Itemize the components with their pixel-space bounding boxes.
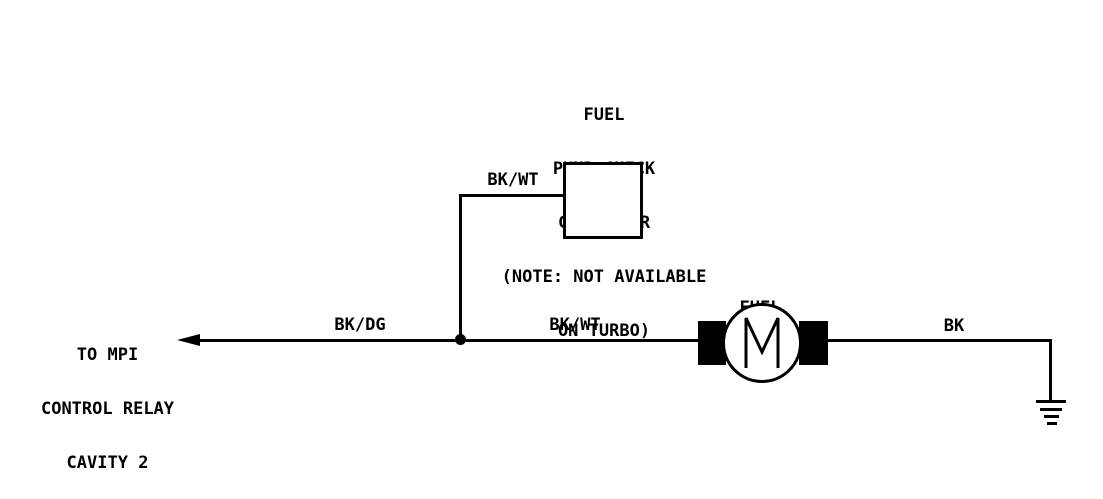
check-connector-label-line: FUEL bbox=[454, 106, 754, 124]
ground-bar bbox=[1040, 408, 1062, 411]
wire-label-bkdg: BK/DG bbox=[310, 316, 410, 334]
mpi-relay-label-line: TO MPI bbox=[10, 346, 205, 364]
wire-label-bkwt-main: BK/WT bbox=[525, 316, 625, 334]
wire-main-left bbox=[197, 339, 701, 342]
wire-ground-vertical bbox=[1049, 339, 1052, 402]
junction-dot bbox=[455, 334, 466, 345]
wiring-diagram: FUEL PUMP CHECK CONNECTOR (NOTE: NOT AVA… bbox=[0, 0, 1103, 499]
wire-label-bkwt-top: BK/WT bbox=[460, 171, 566, 189]
motor-terminal-right bbox=[799, 321, 828, 365]
wire-main-right bbox=[826, 339, 1052, 342]
mpi-relay-label-line: CONTROL RELAY bbox=[10, 400, 205, 418]
ground-bar bbox=[1036, 400, 1066, 403]
ground-bar bbox=[1047, 422, 1057, 425]
wire-check-connector-horizontal bbox=[459, 194, 563, 197]
motor-symbol bbox=[722, 303, 802, 383]
mpi-relay-label: TO MPI CONTROL RELAY CAVITY 2 bbox=[10, 310, 205, 499]
mpi-relay-label-line: CAVITY 2 bbox=[10, 454, 205, 472]
wire-check-connector-vertical bbox=[459, 194, 462, 342]
wire-label-bk: BK bbox=[904, 317, 1004, 335]
ground-bar bbox=[1044, 415, 1059, 418]
check-connector-box bbox=[563, 162, 643, 239]
motor-letter-m-icon bbox=[743, 316, 781, 370]
